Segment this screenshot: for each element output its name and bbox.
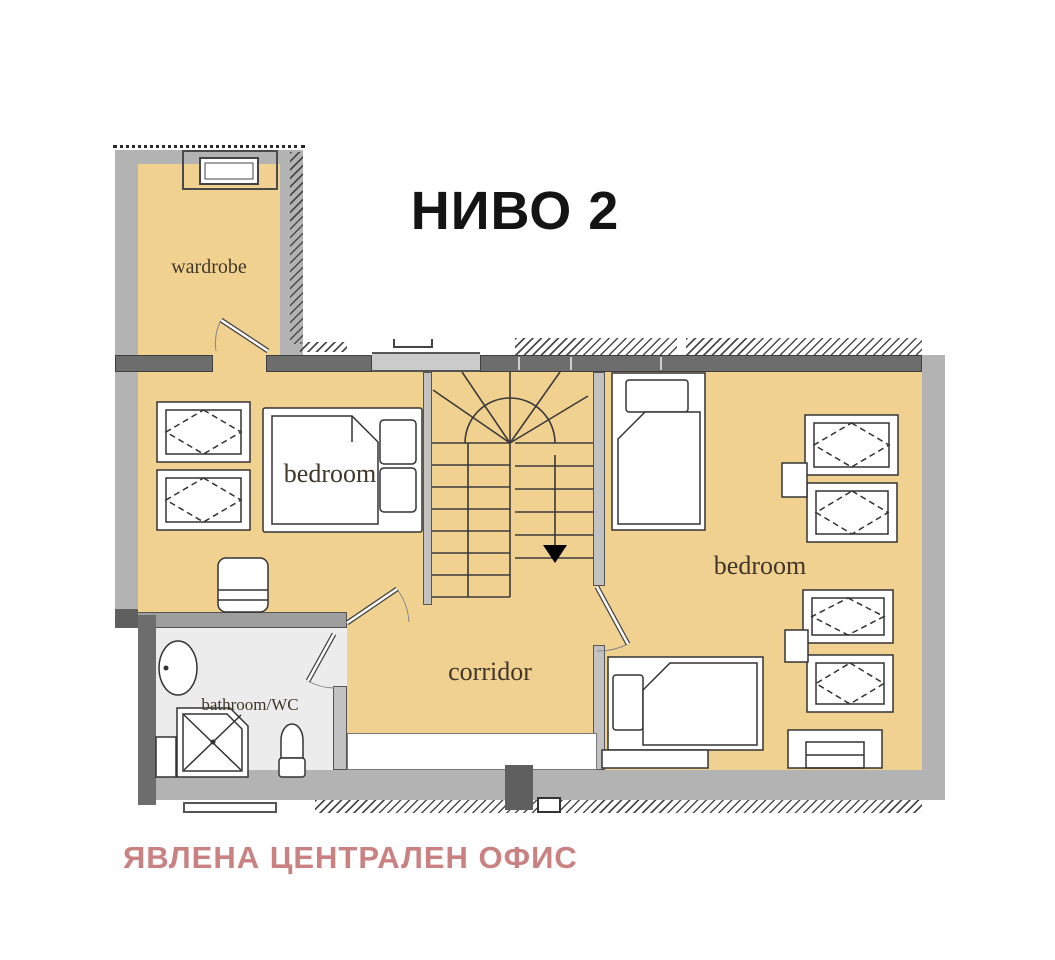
toilet [279,724,305,777]
shower [177,708,248,777]
single-bed-vertical [612,373,705,530]
shelf [602,750,708,768]
door-bedroom-left [347,589,409,623]
floorplan-canvas: НИВО 2 wardrobe bedroom bedroom corridor… [0,0,1055,960]
door-wardrobe [215,320,268,351]
door-bathroom [308,634,334,688]
wardrobe-cabinet [807,483,897,542]
bedroom-left-label: bedroom [255,460,405,489]
bedroom-left-furniture [157,402,422,612]
wardrobe-cabinet [807,655,893,712]
watermark-text: ЯВЛЕНА ЦЕНТРАЛЕН ОФИС [123,840,578,876]
side-table [785,630,808,662]
wardrobe-cabinet [805,415,898,475]
desk [788,730,882,768]
side-table [782,463,807,497]
door-bedroom-right [597,587,628,651]
bedroom-right-label: bedroom [690,552,830,581]
bathroom-label: bathroom/WC [175,696,325,715]
wardrobe-cabinet [803,590,893,643]
wardrobe-cabinet [157,402,250,462]
wardrobe-cabinet [157,470,250,530]
wardrobe-label: wardrobe [138,256,280,278]
wardrobe-window [200,158,258,184]
chair [218,558,268,612]
staircase [432,372,593,597]
wall-cabinet [156,737,176,777]
corridor-label: corridor [415,658,565,687]
lineart-overlay [0,0,1055,960]
single-bed-horizontal [608,657,763,750]
plan-title: НИВО 2 [390,180,640,248]
stairs-down-arrow [543,545,567,563]
